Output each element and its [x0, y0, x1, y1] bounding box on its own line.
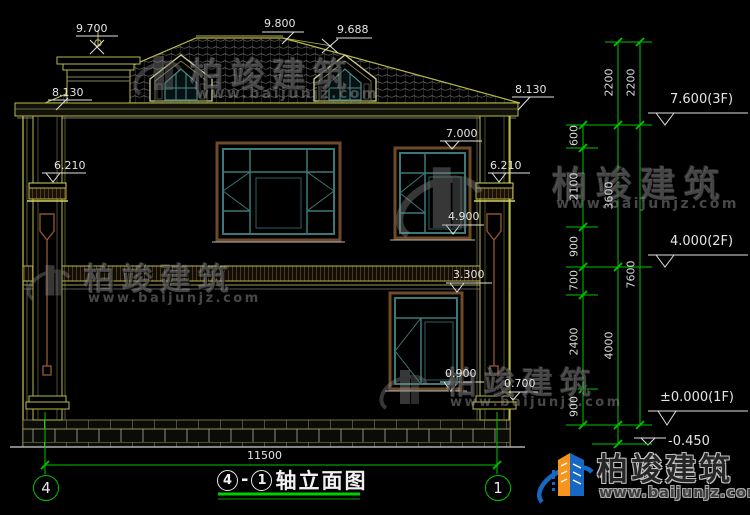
dim-700: 700: [568, 251, 581, 311]
brand-url: www.baijunjz.com: [599, 485, 750, 501]
dim-2400: 2400: [568, 312, 581, 372]
elev-label-9700: 9.700: [76, 23, 108, 35]
elev-label-0900: 0.900: [445, 368, 477, 380]
axis-bubble-4: 4: [33, 475, 59, 501]
window-2f-center: [212, 143, 345, 242]
dim-4000: 4000: [603, 316, 616, 376]
cad-linework: [0, 0, 750, 515]
dim-7600: 7600: [625, 245, 638, 305]
axis-bubble-1: 1: [485, 475, 511, 501]
elev-label-9800: 9.800: [264, 18, 296, 30]
title-axis-left: 4: [217, 470, 238, 491]
elev-label-6210-right: 6.210: [490, 160, 522, 172]
floor-label-1f: ±0.000(1F): [660, 392, 734, 404]
dim-11500: 11500: [247, 450, 282, 462]
elevation-drawing: 柏竣建筑 www.baijunjz.com 柏竣建筑 www.baijunjz.…: [0, 0, 750, 515]
elev-label-4900: 4.900: [448, 211, 480, 223]
dim-2200-outer: 2200: [625, 53, 638, 113]
dim-2100: 2100: [568, 157, 581, 217]
elev-label-0700: 0.700: [504, 378, 536, 390]
elev-label-7000: 7.000: [446, 128, 478, 140]
elev-label-6210-left: 6.210: [54, 160, 86, 172]
eave-cornice: [15, 103, 518, 118]
dim-2200-inner: 2200: [603, 53, 616, 113]
floor-cornice-band: [23, 266, 510, 289]
dim-3600: 3600: [603, 166, 616, 226]
brand-logo-icon: [539, 453, 592, 502]
elev-label-8130-right: 8.130: [515, 84, 547, 96]
title-text: 轴立面图: [275, 465, 367, 495]
window-2f-right: [390, 148, 475, 240]
elev-label-3300: 3.300: [453, 269, 485, 281]
drawing-title: 4 - 1 轴立面图: [217, 465, 367, 495]
elev-label-9688: 9.688: [337, 24, 369, 36]
brand-name: 柏竣建筑: [597, 444, 733, 489]
floor-label-2f: 4.000(2F): [670, 236, 733, 248]
dim-900-lower: 900: [568, 377, 581, 437]
elev-label-8130-left: 8.130: [52, 87, 84, 99]
title-separator: -: [241, 471, 248, 489]
title-axis-right: 1: [251, 470, 272, 491]
brick-plinth: [10, 420, 525, 447]
floor-label-3f: 7.600(3F): [670, 94, 733, 106]
